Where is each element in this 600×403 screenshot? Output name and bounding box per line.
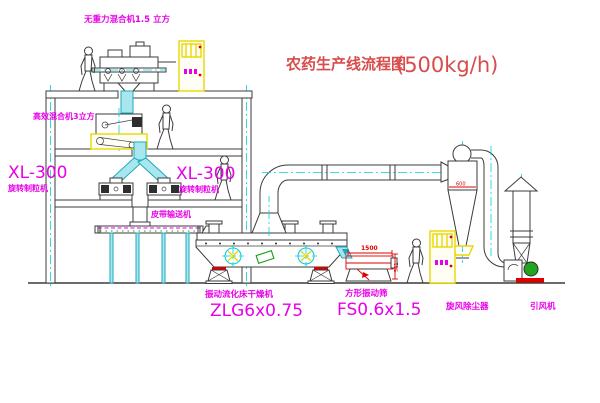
gravity-free-mixer <box>92 42 176 113</box>
sieve-height-dimension: 541 <box>394 262 400 272</box>
label-granulator-right-model: XL-300 <box>176 164 235 184</box>
dryer-mount-left <box>206 267 232 284</box>
diagram-title: 农药生产线流程图 <box>285 55 406 73</box>
person-ground <box>407 239 423 283</box>
fan-motor <box>524 262 538 276</box>
label-fan: 引风机 <box>530 301 556 312</box>
granulator-left <box>99 178 133 200</box>
fan-base <box>516 278 544 283</box>
person-second-floor <box>157 105 173 149</box>
label-sieve-name: 方形振动筛 <box>345 288 388 299</box>
conveyor-legs <box>110 233 189 283</box>
label-gravity-mixer: 无重力混合机1.5 立方 <box>83 14 171 25</box>
label-cyclone: 旋风除尘器 <box>445 301 489 312</box>
mixer-discharge-pipe <box>121 91 133 113</box>
granulator-discharge-pipe <box>130 207 150 226</box>
cyclone-dimension: 600 <box>456 182 466 188</box>
label-high-efficiency-mixer: 高效混合机3立方 <box>33 111 95 121</box>
belt-conveyor <box>95 226 203 283</box>
dryer-mount-right <box>308 267 334 284</box>
label-dryer-name: 振动流化床干燥机 <box>205 289 274 300</box>
control-cabinet-ground <box>430 231 455 283</box>
sieve-length-dimension: 1500 <box>361 245 378 252</box>
cad-flow-diagram: 600 <box>0 0 600 403</box>
diagram-capacity: (500kg/h) <box>396 53 498 77</box>
control-cabinet-top <box>179 41 204 91</box>
square-vibrating-sieve <box>346 250 398 281</box>
label-sieve-model: FS0.6x1.5 <box>337 300 421 320</box>
label-dryer-model: ZLG6x0.75 <box>210 301 303 321</box>
label-granulator-right-name: 旋转制粒机 <box>178 184 219 194</box>
label-granulator-left-name: 旋转制粒机 <box>7 183 48 193</box>
drawing-surface: 600 <box>0 0 600 403</box>
label-granulator-left-model: XL-300 <box>8 163 67 183</box>
label-belt-conveyor: 皮带输送机 <box>150 209 191 219</box>
exhaust-duct <box>252 162 452 236</box>
